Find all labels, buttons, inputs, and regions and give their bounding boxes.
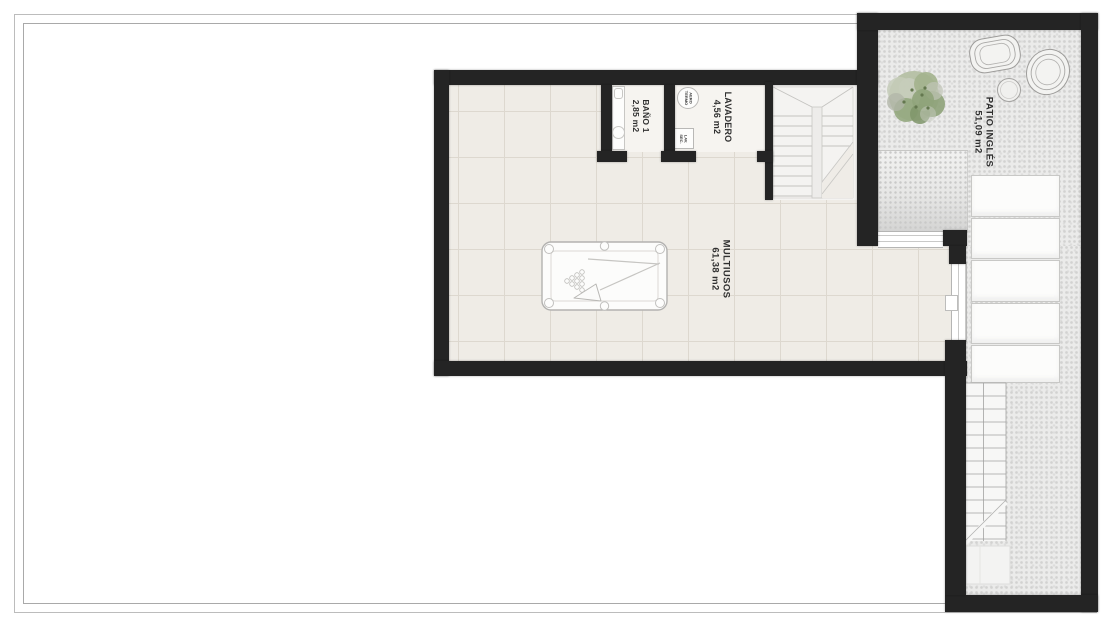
wall-stub-lavadero xyxy=(661,151,696,162)
room-area: 51,09 m2 xyxy=(972,97,983,167)
room-name: MULTIUSOS xyxy=(720,240,731,299)
wall-junction-lower xyxy=(949,246,966,264)
planter-box-2 xyxy=(971,218,1060,259)
main-staircase xyxy=(770,82,860,234)
wall-stub-stairwell xyxy=(757,151,773,162)
side-table xyxy=(998,79,1021,102)
wall-strip-bottom xyxy=(945,595,1098,612)
room-name: BAÑO 1 xyxy=(641,99,651,132)
wall-stub-bano xyxy=(597,151,627,162)
planter-box-4 xyxy=(971,303,1060,344)
wall-partition-bano-left xyxy=(601,85,612,152)
patio-terrace-pad xyxy=(878,150,968,233)
pod-chair-left xyxy=(967,33,1022,75)
patio-stair-landing xyxy=(966,546,1010,584)
room-name: LAVADERO xyxy=(722,92,733,143)
room-label-patio-ingles: PATIO INGLÉS 51,09 m2 xyxy=(972,97,995,167)
pod-chair-right xyxy=(1019,42,1070,102)
bath-toilet xyxy=(612,126,625,139)
room-area: 2,85 m2 xyxy=(631,99,641,132)
wall-partition-bano-lavadero xyxy=(664,85,675,152)
room-area: 4,56 m2 xyxy=(711,92,722,143)
shrub-foliage xyxy=(887,71,945,124)
washer-dryer-unit: LAV. SEC. xyxy=(672,128,694,149)
shrub-plant xyxy=(876,60,958,142)
room-label-multiusos: MULTIUSOS 61,38 m2 xyxy=(709,240,732,299)
wall-strip-left xyxy=(945,340,966,595)
planter-box-3 xyxy=(971,260,1060,302)
room-area: 61,38 m2 xyxy=(709,240,720,299)
washer-dryer-label: LAV. SEC. xyxy=(679,134,688,143)
window-patio-door xyxy=(878,231,943,248)
room-multiusos-floor-right xyxy=(858,246,953,362)
wall-patio-right xyxy=(1081,13,1098,612)
bath-sink xyxy=(614,88,623,99)
patio-furniture xyxy=(958,26,1070,108)
pool-table xyxy=(538,238,672,318)
aerothermal-label: AERO TERMO xyxy=(684,91,693,105)
room-label-bano: BAÑO 1 2,85 m2 xyxy=(631,99,651,132)
planter-box-5 xyxy=(971,345,1060,383)
patio-service-stair xyxy=(964,380,1012,586)
room-name: PATIO INGLÉS xyxy=(983,97,994,167)
wall-room-bottom xyxy=(434,361,967,376)
wall-patio-top xyxy=(857,13,1098,30)
plan-sheet: AERO TERMO LAV. SEC. BAÑO 1 2,85 m2 LAVA… xyxy=(0,0,1110,626)
wall-room-left xyxy=(434,70,449,376)
aerothermal-unit: AERO TERMO xyxy=(677,87,699,109)
wall-junction-upper xyxy=(943,230,967,246)
wall-partition-stairwell xyxy=(765,82,773,200)
room-label-lavadero: LAVADERO 4,56 m2 xyxy=(711,92,733,143)
window-sash-tab xyxy=(945,295,958,311)
wall-room-top xyxy=(434,70,878,85)
wall-patio-left xyxy=(857,13,878,246)
planter-box-1 xyxy=(971,175,1060,217)
